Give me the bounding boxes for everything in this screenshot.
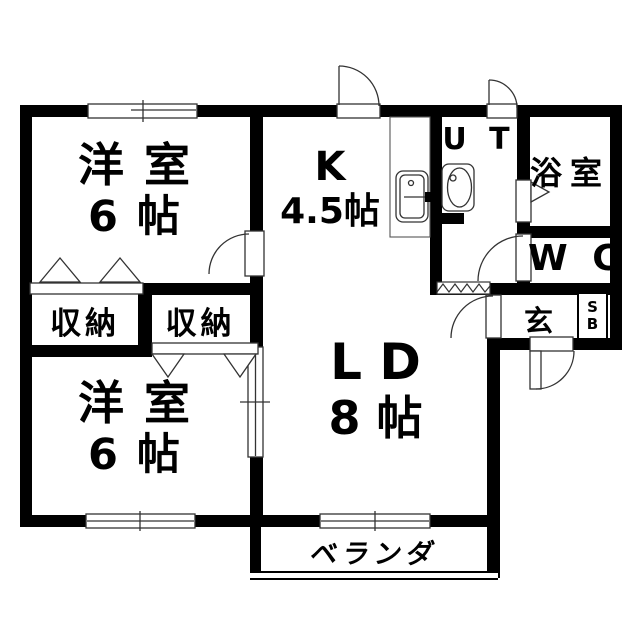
room-label-bedroom-bottom: 洋 室 6 帖: [35, 376, 235, 480]
floor-plan: 洋 室 6 帖 K 4.5帖 U T 浴室 W C 玄 S B 収納 収納 L …: [0, 0, 639, 640]
veranda-name: ベランダ: [308, 539, 441, 570]
kitchen-size: 4.5帖: [262, 190, 398, 234]
shoe-box: S B: [577, 292, 608, 340]
room-label-closet-right: 収納: [150, 298, 251, 343]
shoe-box-letter-b: B: [587, 316, 598, 333]
window-bedroom-top: [88, 100, 197, 122]
closet-left-bifold-door: [30, 258, 143, 294]
room-label-kitchen: K 4.5帖: [262, 144, 398, 234]
bedroom-top-size: 6 帖: [35, 192, 235, 242]
door-toilet: [478, 234, 531, 281]
closet-right-bifold-door: [152, 343, 258, 377]
kitchen-sink: [396, 171, 432, 222]
entrance-name: 玄: [524, 304, 553, 338]
door-entrance-living: [451, 295, 501, 338]
window-bedroom-bottom: [86, 511, 195, 531]
entrance-step-accordion: [437, 282, 490, 294]
room-label-living-dining: L D 8 帖: [268, 333, 483, 445]
bedroom-bottom-size: 6 帖: [35, 430, 235, 480]
washbasin-counter-stub: [438, 213, 464, 224]
room-label-bathroom: 浴室: [528, 148, 612, 194]
room-label-toilet: W C: [528, 238, 614, 279]
bedroom-top-name: 洋 室: [78, 138, 192, 192]
toilet-name: W C: [528, 238, 625, 279]
room-label-entrance: 玄: [500, 298, 577, 340]
kitchen-name: K: [315, 144, 346, 190]
room-label-bedroom-top: 洋 室 6 帖: [35, 138, 235, 242]
door-utility-back: [487, 80, 517, 118]
living-dining-size: 8 帖: [268, 391, 483, 445]
shoe-box-letter-s: S: [587, 299, 598, 316]
window-living-veranda: [320, 511, 430, 531]
closet-left-name: 収納: [50, 306, 120, 342]
room-label-veranda: ベランダ: [262, 532, 489, 571]
door-main-entrance: [530, 337, 574, 389]
living-dining-name: L D: [330, 333, 421, 391]
bedroom-bottom-name: 洋 室: [78, 376, 192, 430]
utility-washbasin: [438, 164, 474, 224]
bathroom-name: 浴室: [530, 154, 610, 192]
door-kitchen-back: [337, 66, 380, 118]
room-label-closet-left: 収納: [30, 298, 140, 343]
room-label-utility: U T: [438, 122, 520, 157]
closet-right-name: 収納: [166, 306, 236, 342]
utility-name: U T: [442, 122, 515, 157]
